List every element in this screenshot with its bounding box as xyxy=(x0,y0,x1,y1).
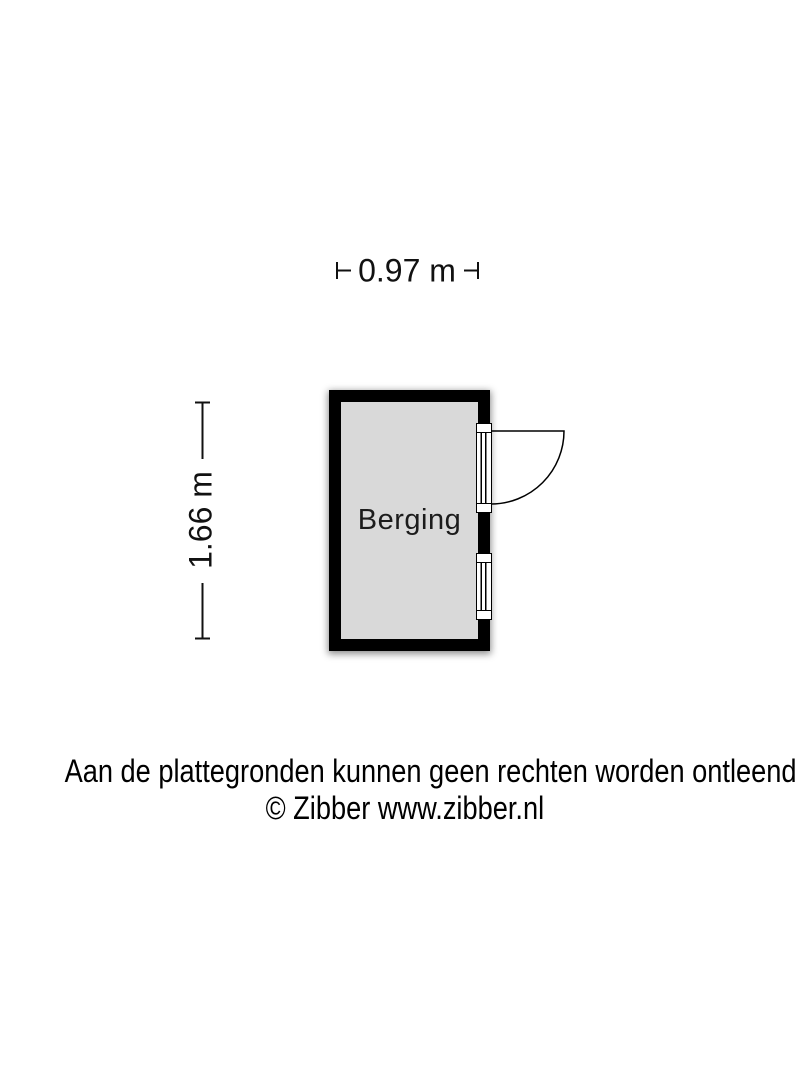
door-swing-arc xyxy=(491,431,564,504)
window-jamb-bottom xyxy=(476,610,492,620)
disclaimer-line: Aan de plattegronden kunnen geen rechten… xyxy=(0,753,809,790)
floorplan-page: 0.97 m 1.66 m Berging xyxy=(0,0,809,1080)
window-icon xyxy=(476,553,492,620)
copyright-text: © Zibber www.zibber.nl xyxy=(265,790,544,827)
room-walls: Berging xyxy=(329,390,490,651)
room-label: Berging xyxy=(358,504,461,537)
door-panel-lines xyxy=(476,433,492,503)
disclaimer-text: Aan de plattegronden kunnen geen rechten… xyxy=(65,753,797,790)
room-berging: Berging xyxy=(341,402,478,639)
copyright-line: © Zibber www.zibber.nl xyxy=(0,790,809,827)
dimension-width-label: 0.97 m xyxy=(358,253,456,290)
window-jamb-top xyxy=(476,553,492,563)
door-jamb-bottom xyxy=(476,503,492,513)
door-icon xyxy=(476,423,492,513)
footer: Aan de plattegronden kunnen geen rechten… xyxy=(0,753,809,827)
window-glass-lines xyxy=(476,563,492,610)
door-jamb-top xyxy=(476,423,492,433)
dimension-height-label: 1.66 m xyxy=(183,471,220,569)
